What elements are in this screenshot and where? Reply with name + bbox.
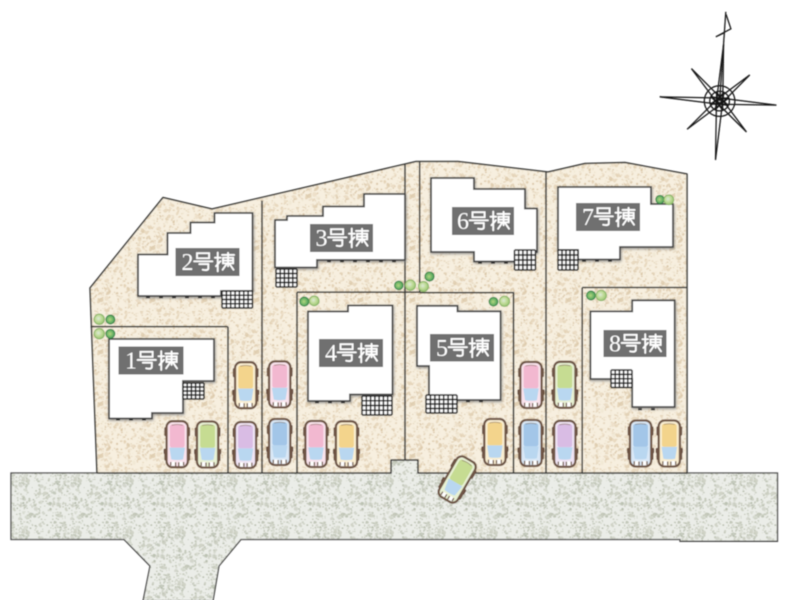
svg-text:1: 1 xyxy=(125,349,137,375)
svg-text:6: 6 xyxy=(457,209,469,235)
svg-text:3: 3 xyxy=(316,226,328,252)
svg-text:8: 8 xyxy=(609,332,621,358)
svg-text:4: 4 xyxy=(325,341,337,367)
svg-text:5: 5 xyxy=(436,336,448,362)
svg-text:2: 2 xyxy=(182,250,194,276)
svg-text:7: 7 xyxy=(582,205,594,231)
